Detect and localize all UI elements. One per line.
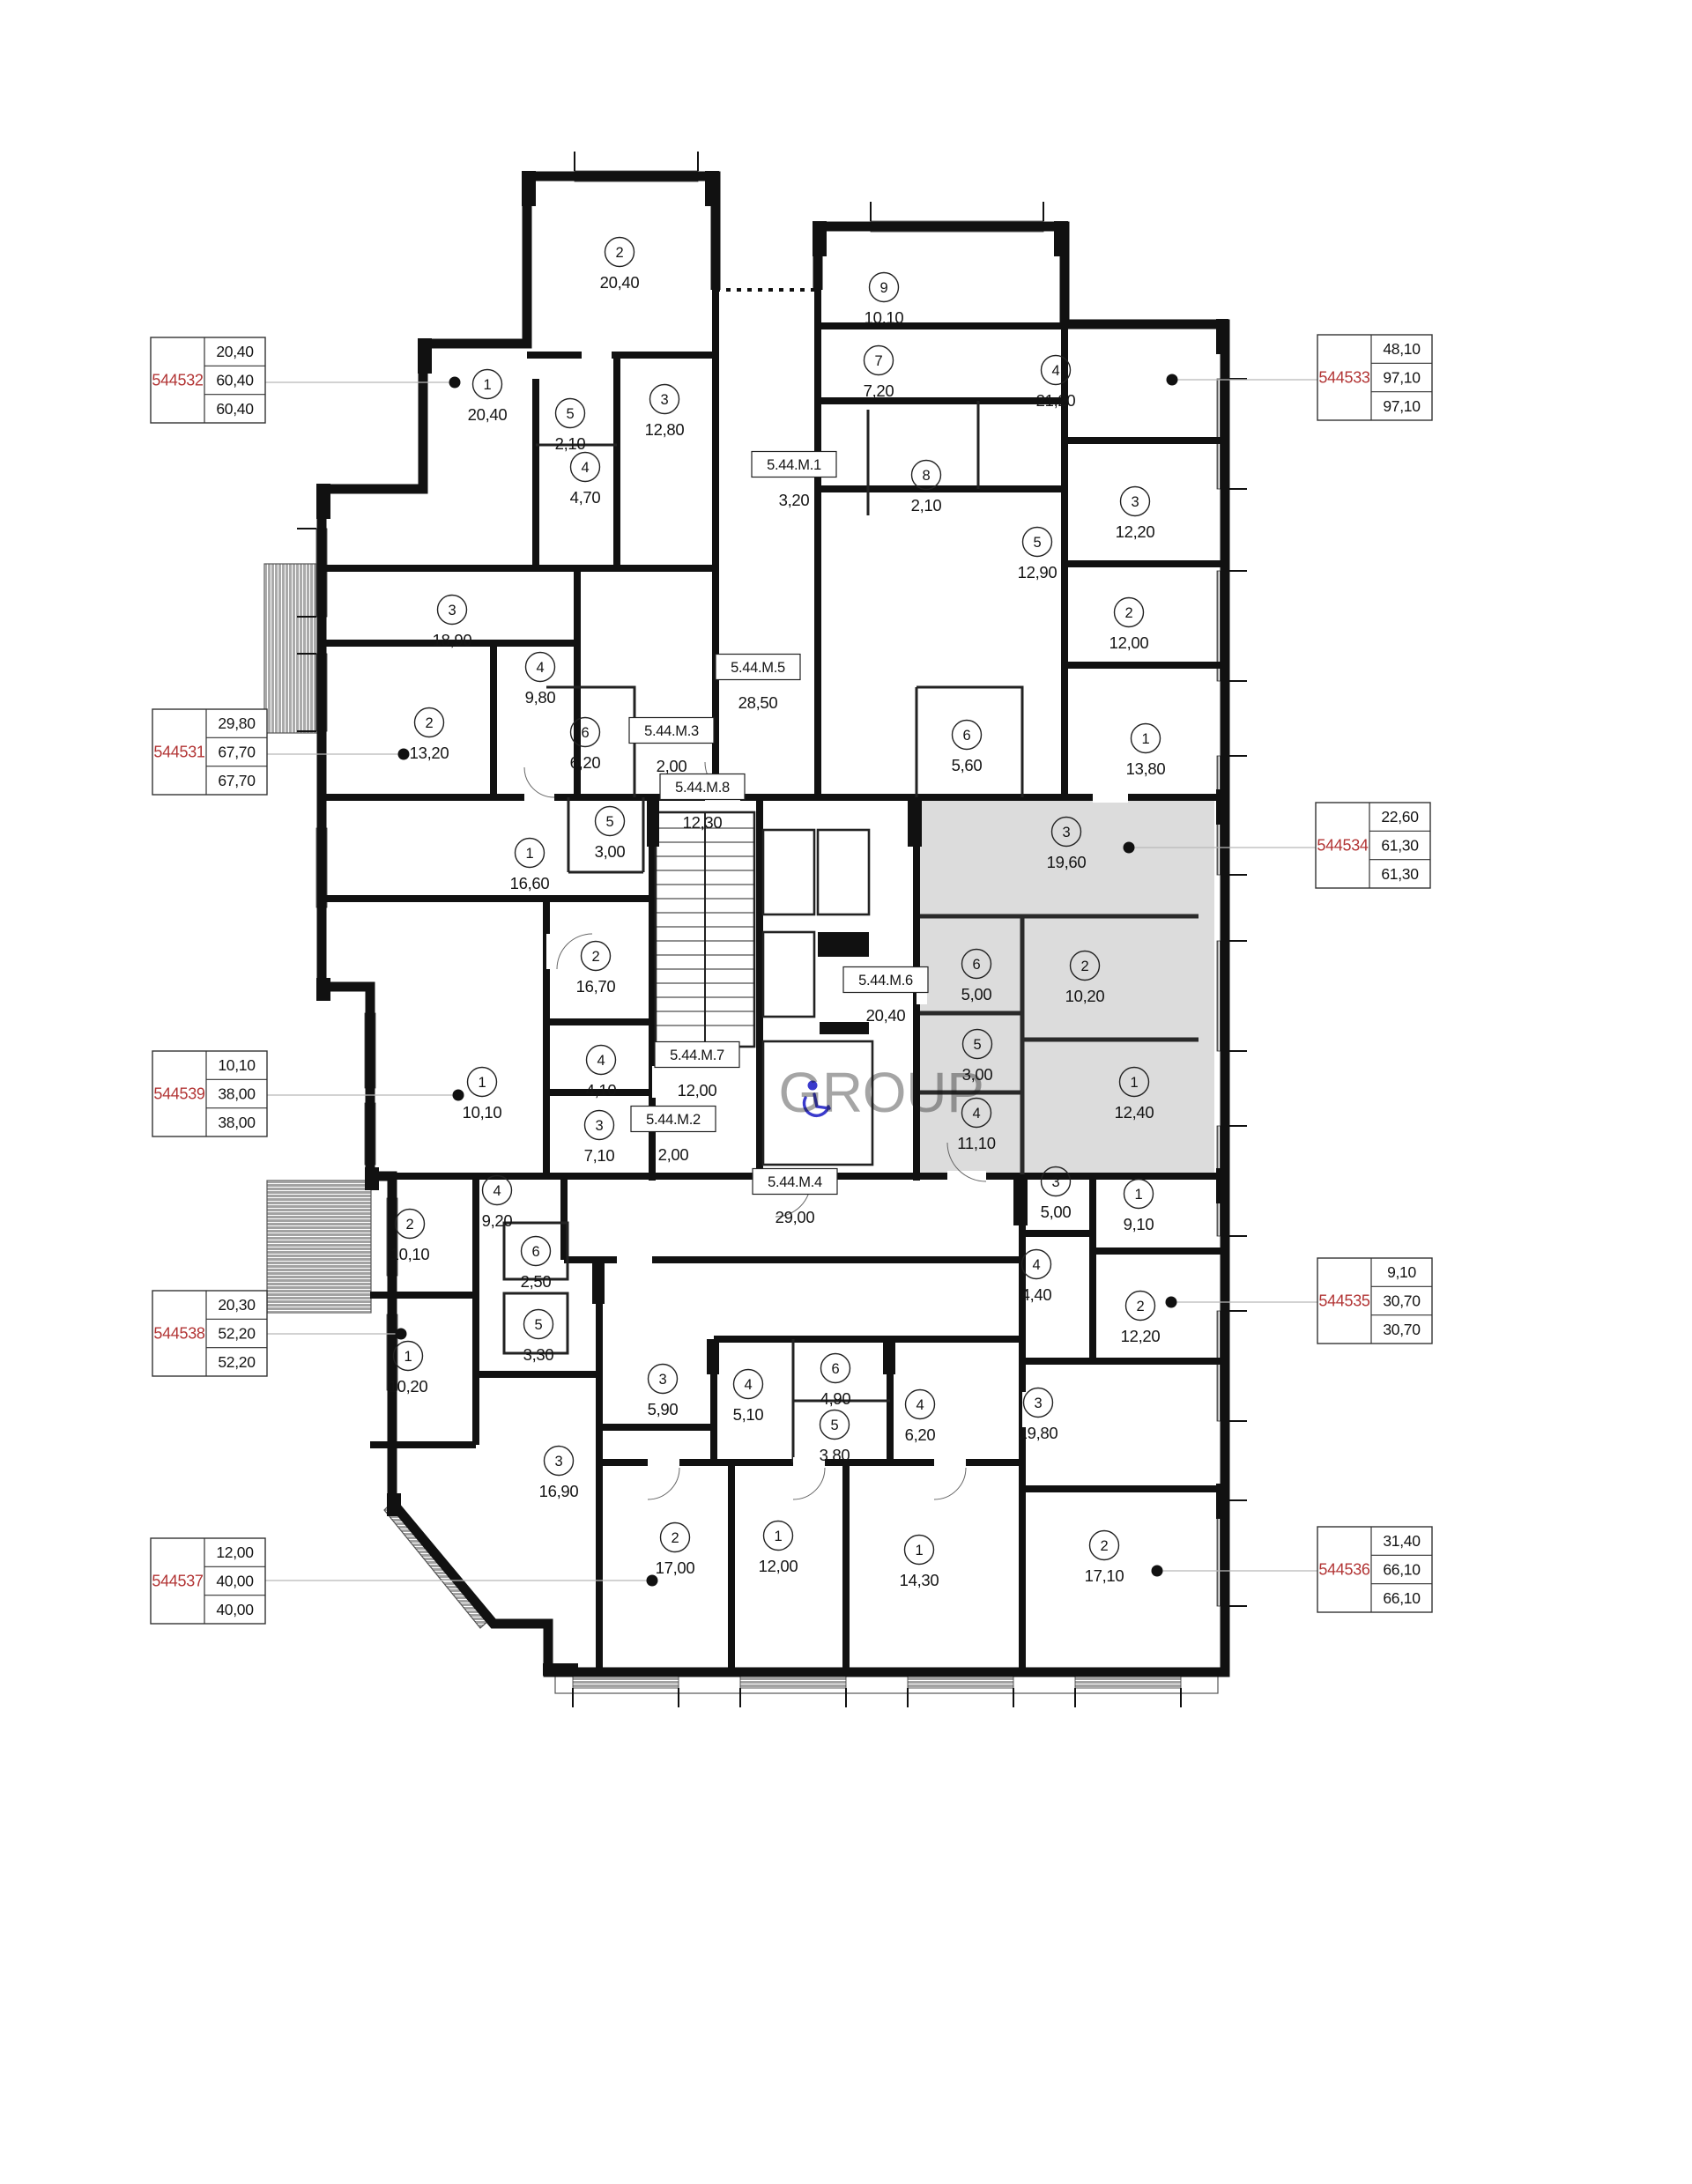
room-area: 5,90 [648, 1400, 679, 1418]
unit-area-value: 30,70 [1383, 1292, 1421, 1310]
unit-area-value: 20,30 [218, 1296, 256, 1314]
room-area: 4,10 [586, 1081, 617, 1099]
room-area: 16,70 [576, 977, 616, 996]
room-number: 3 [449, 603, 456, 618]
room-number: 1 [1131, 1075, 1139, 1091]
room-area: 14,30 [900, 1571, 939, 1589]
room-number: 3 [1035, 1396, 1043, 1411]
room-number: 1 [1135, 1187, 1143, 1203]
room-area: 12,00 [1109, 633, 1149, 652]
room-number: 5 [831, 1418, 839, 1433]
room-area: 9,20 [482, 1211, 513, 1230]
room-number: 2 [406, 1217, 414, 1233]
room-number: 3 [1052, 1174, 1060, 1190]
room-number: 5 [974, 1037, 982, 1053]
unit-id-label[interactable]: 544537 [152, 1573, 204, 1590]
room-area: 19,60 [1047, 853, 1087, 871]
leader-dot [1166, 1297, 1177, 1308]
watermark-text: GROUP [778, 1061, 983, 1124]
common-area-area: 2,00 [657, 757, 687, 775]
common-area-area: 20,40 [866, 1006, 906, 1025]
room-number: 3 [1132, 494, 1139, 510]
common-area-area: 12,00 [678, 1081, 717, 1099]
room-number: 4 [1052, 363, 1060, 379]
room-area: 13,80 [1126, 759, 1166, 778]
room-area: 12,20 [1116, 522, 1155, 541]
room-number: 3 [555, 1454, 563, 1470]
room-number: 6 [582, 725, 590, 741]
room-area: 20,40 [468, 405, 508, 424]
room-number: 3 [596, 1118, 604, 1134]
room-area: 7,10 [584, 1146, 615, 1165]
room-number: 2 [616, 245, 624, 261]
unit-area-value: 52,20 [218, 1353, 256, 1371]
room-area: 10,10 [865, 308, 904, 327]
common-area-code: 5.44.M.4 [768, 1174, 822, 1190]
room-number: 2 [1125, 605, 1133, 621]
room-area: 10,10 [390, 1245, 430, 1263]
unit-area-value: 60,40 [216, 400, 254, 418]
common-area-area: 2,00 [658, 1145, 689, 1164]
leader-dot [398, 749, 410, 760]
unit-area-value: 38,00 [218, 1085, 256, 1103]
room-number: 6 [973, 957, 981, 973]
common-area-area: 28,50 [738, 693, 778, 712]
room-number: 2 [672, 1530, 679, 1546]
room-number: 5 [606, 814, 614, 830]
room-number: 1 [484, 377, 492, 393]
room-area: 12,90 [1018, 563, 1057, 581]
unit-area-value: 61,30 [1381, 837, 1419, 855]
room-number: 2 [1081, 959, 1089, 974]
unit-area-value: 12,00 [216, 1544, 254, 1561]
room-number: 1 [1142, 731, 1150, 747]
common-area-code: 5.44.M.6 [858, 973, 913, 988]
room-area: 11,10 [957, 1134, 995, 1152]
common-area-area: 12,30 [683, 813, 723, 832]
room-number: 4 [537, 660, 545, 676]
room-area: 5,00 [961, 985, 992, 1003]
room-number: 2 [426, 715, 434, 731]
floor-plan-page: { "page": { "background": "#ffffff" }, "… [0, 0, 1692, 2184]
common-area-code: 5.44.M.1 [767, 457, 821, 473]
leader-dot [1152, 1566, 1163, 1577]
room-number: 4 [973, 1106, 981, 1122]
unit-id-label[interactable]: 544533 [1318, 369, 1370, 387]
room-area: 4,70 [570, 488, 601, 507]
room-number: 1 [404, 1349, 412, 1365]
common-area-area: 3,20 [779, 491, 810, 509]
room-number: 2 [1101, 1538, 1109, 1554]
unit-id-label[interactable]: 544531 [153, 744, 205, 761]
unit-area-value: 40,00 [216, 1601, 254, 1618]
unit-area-value: 67,70 [218, 744, 256, 761]
room-area: 5,60 [952, 756, 983, 774]
room-number: 6 [532, 1244, 540, 1260]
room-number: 1 [775, 1529, 783, 1544]
unit-area-value: 9,10 [1387, 1263, 1416, 1281]
room-area: 3,30 [523, 1345, 554, 1364]
room-number: 1 [526, 846, 534, 862]
unit-id-label[interactable]: 544536 [1318, 1561, 1370, 1579]
room-number: 9 [880, 280, 888, 296]
unit-area-value: 67,70 [218, 772, 256, 789]
room-area: 21,20 [1036, 391, 1076, 410]
room-area: 10,20 [389, 1377, 428, 1396]
room-area: 10,10 [463, 1103, 502, 1122]
room-number: 3 [661, 392, 669, 408]
common-area-area: 29,00 [775, 1208, 815, 1226]
room-area: 2,10 [555, 434, 586, 453]
leader-dot [1167, 374, 1178, 386]
room-number: 5 [1034, 535, 1042, 551]
room-area: 4,90 [820, 1389, 851, 1408]
room-area: 12,80 [645, 420, 685, 439]
unit-id-label[interactable]: 544534 [1317, 837, 1369, 855]
room-area: 5,00 [1041, 1203, 1072, 1221]
unit-area-value: 60,40 [216, 372, 254, 389]
leader-dot [1124, 842, 1135, 854]
unit-area-value: 61,30 [1381, 865, 1419, 883]
unit-area-value: 30,70 [1383, 1321, 1421, 1338]
room-number: 4 [493, 1183, 501, 1199]
unit-area-value: 66,10 [1383, 1589, 1421, 1607]
room-area: 3,00 [962, 1065, 993, 1084]
room-number: 6 [832, 1361, 840, 1377]
unit-area-value: 20,40 [216, 343, 254, 360]
room-number: 6 [963, 728, 971, 744]
room-number: 2 [592, 949, 600, 965]
leader-dot [396, 1329, 407, 1340]
room-number: 3 [659, 1372, 667, 1388]
unit-area-value: 40,00 [216, 1573, 254, 1590]
room-area: 12,00 [759, 1557, 798, 1575]
room-area: 10,20 [1065, 987, 1105, 1005]
unit-id-label[interactable]: 544532 [152, 372, 204, 389]
room-area: 2,10 [911, 496, 942, 515]
room-number: 4 [1033, 1257, 1041, 1273]
unit-id-label[interactable]: 544538 [153, 1325, 205, 1343]
floor-plan-svg: GROUP54453220,4060,4060,4054453129,8067,… [0, 0, 1692, 2184]
unit-area-value: 97,10 [1383, 397, 1421, 415]
unit-area-value: 97,10 [1383, 369, 1421, 387]
unit-area-value: 22,60 [1381, 808, 1419, 825]
room-area: 12,20 [1121, 1327, 1161, 1345]
room-area: 19,80 [1019, 1424, 1058, 1442]
room-area: 17,10 [1085, 1566, 1124, 1585]
room-number: 5 [567, 406, 575, 422]
common-area-code: 5.44.M.5 [731, 660, 785, 676]
room-area: 9,80 [525, 688, 556, 707]
room-area: 16,60 [510, 874, 550, 892]
common-area-code: 5.44.M.8 [675, 780, 730, 796]
room-area: 2,50 [521, 1272, 552, 1291]
room-area: 4,40 [1021, 1285, 1052, 1304]
room-area: 20,40 [600, 273, 640, 292]
room-number: 4 [582, 460, 590, 476]
leader-dot [449, 377, 461, 389]
unit-area-value: 52,20 [218, 1325, 256, 1343]
unit-id-label[interactable]: 544535 [1318, 1292, 1370, 1310]
room-number: 1 [479, 1075, 486, 1091]
unit-area-value: 31,40 [1383, 1532, 1421, 1550]
common-area-code: 5.44.M.3 [644, 723, 699, 739]
common-area-code: 5.44.M.7 [670, 1048, 724, 1063]
room-number: 4 [597, 1053, 605, 1069]
unit-area-value: 29,80 [218, 714, 256, 732]
unit-table-544532[interactable]: 54453220,4060,4060,40 [151, 337, 461, 423]
unit-area-value: 38,00 [218, 1114, 256, 1131]
room-area: 12,40 [1115, 1103, 1154, 1122]
unit-area-value: 48,10 [1383, 340, 1421, 358]
unit-area-value: 66,10 [1383, 1561, 1421, 1579]
unit-area-value: 10,10 [218, 1056, 256, 1074]
room-number: 7 [875, 353, 883, 369]
unit-id-label[interactable]: 544539 [153, 1085, 205, 1103]
room-number: 3 [1063, 825, 1071, 840]
room-area: 6,20 [570, 753, 601, 772]
room-number: 2 [1137, 1299, 1145, 1314]
room-area: 13,20 [410, 744, 449, 762]
room-area: 16,90 [539, 1482, 579, 1500]
room-area: 5,10 [733, 1405, 764, 1424]
room-number: 4 [745, 1377, 753, 1393]
room-number: 1 [916, 1543, 924, 1558]
room-number: 4 [916, 1397, 924, 1413]
room-number: 5 [535, 1317, 543, 1333]
room-number: 8 [923, 468, 931, 484]
common-area-code: 5.44.M.2 [646, 1112, 701, 1128]
building-drawing [264, 152, 1247, 1707]
room-area: 18,90 [433, 631, 472, 649]
room-area: 17,00 [656, 1558, 695, 1577]
leader-dot [453, 1090, 464, 1101]
room-area: 3,80 [820, 1446, 850, 1464]
room-area: 9,10 [1124, 1215, 1154, 1233]
room-area: 3,00 [595, 842, 626, 861]
room-area: 6,20 [905, 1425, 936, 1444]
room-area: 7,20 [864, 381, 894, 400]
